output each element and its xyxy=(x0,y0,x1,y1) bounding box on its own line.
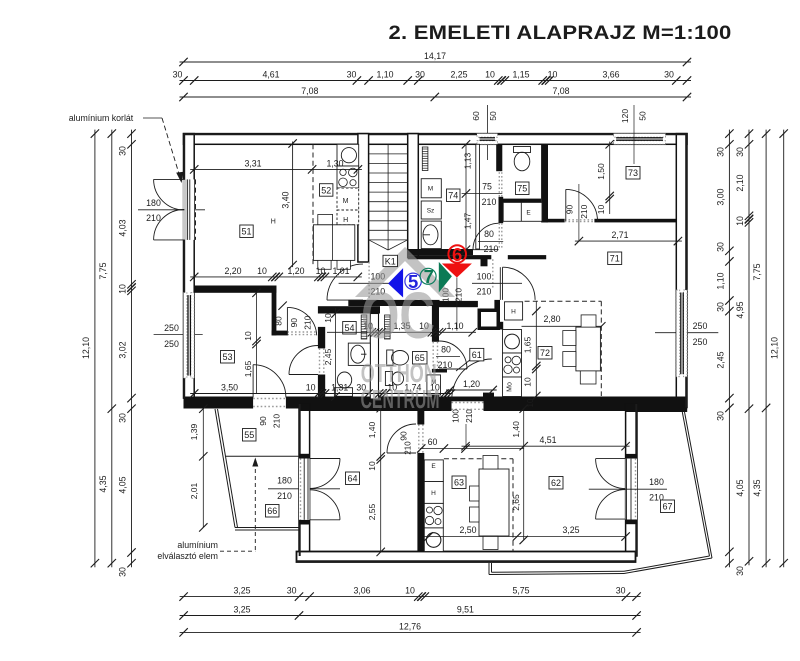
svg-text:30: 30 xyxy=(173,70,183,80)
svg-text:210: 210 xyxy=(464,409,474,423)
svg-text:elválasztó elem: elválasztó elem xyxy=(157,551,218,561)
svg-text:210: 210 xyxy=(482,197,497,207)
svg-text:7,75: 7,75 xyxy=(752,263,762,280)
svg-text:2,01: 2,01 xyxy=(189,482,199,499)
svg-text:250: 250 xyxy=(693,337,708,347)
svg-text:30: 30 xyxy=(715,242,725,252)
svg-text:30: 30 xyxy=(715,411,725,421)
svg-text:12,10: 12,10 xyxy=(770,337,780,359)
svg-text:10: 10 xyxy=(523,377,533,387)
svg-text:30: 30 xyxy=(735,566,745,576)
svg-text:90: 90 xyxy=(258,416,268,426)
svg-text:2,80: 2,80 xyxy=(543,314,560,324)
svg-text:60: 60 xyxy=(428,437,438,447)
svg-text:55: 55 xyxy=(244,430,254,440)
svg-text:5: 5 xyxy=(408,271,418,292)
svg-text:10: 10 xyxy=(548,70,558,80)
svg-text:90: 90 xyxy=(399,431,409,441)
svg-text:3,00: 3,00 xyxy=(715,188,725,205)
svg-text:1,20: 1,20 xyxy=(463,379,480,389)
svg-text:Mo: Mo xyxy=(507,382,514,392)
svg-text:63: 63 xyxy=(454,478,464,488)
svg-text:2,10: 2,10 xyxy=(735,174,745,191)
svg-text:1,50: 1,50 xyxy=(596,163,606,180)
svg-text:30: 30 xyxy=(616,586,626,596)
svg-text:1,10: 1,10 xyxy=(376,70,393,80)
svg-text:3,50: 3,50 xyxy=(221,383,238,393)
svg-text:30: 30 xyxy=(118,413,128,423)
svg-text:7,08: 7,08 xyxy=(552,86,569,96)
svg-text:54: 54 xyxy=(344,323,354,333)
svg-text:100: 100 xyxy=(477,271,492,281)
svg-text:3,25: 3,25 xyxy=(233,586,250,596)
svg-text:1,40: 1,40 xyxy=(367,421,377,438)
svg-text:10: 10 xyxy=(596,205,606,215)
svg-text:10: 10 xyxy=(243,331,253,341)
svg-text:12,10: 12,10 xyxy=(81,337,91,359)
svg-text:10: 10 xyxy=(306,383,316,393)
svg-text:3,66: 3,66 xyxy=(602,70,619,80)
svg-text:90: 90 xyxy=(565,205,575,215)
svg-text:E: E xyxy=(431,463,436,470)
svg-text:30: 30 xyxy=(118,567,128,577)
svg-text:2,71: 2,71 xyxy=(611,230,628,240)
svg-text:3,06: 3,06 xyxy=(353,586,370,596)
svg-text:73: 73 xyxy=(628,168,638,178)
svg-text:1,65: 1,65 xyxy=(243,360,253,377)
svg-text:30: 30 xyxy=(287,586,297,596)
svg-text:4,51: 4,51 xyxy=(539,435,556,445)
svg-text:7,75: 7,75 xyxy=(98,262,108,279)
svg-text:210: 210 xyxy=(454,288,464,302)
svg-text:K1: K1 xyxy=(385,256,396,266)
svg-text:4,61: 4,61 xyxy=(262,70,279,80)
svg-text:250: 250 xyxy=(164,339,179,349)
svg-text:51: 51 xyxy=(241,227,251,237)
svg-text:50: 50 xyxy=(488,111,498,121)
svg-text:210: 210 xyxy=(272,414,282,428)
svg-text:2,50: 2,50 xyxy=(459,525,476,535)
svg-text:2,55: 2,55 xyxy=(367,503,377,520)
svg-text:30: 30 xyxy=(664,70,674,80)
svg-text:12,76: 12,76 xyxy=(399,621,421,631)
svg-text:alumínium korlát: alumínium korlát xyxy=(69,113,134,123)
svg-text:H: H xyxy=(343,217,348,224)
svg-text:80: 80 xyxy=(441,345,451,355)
svg-text:2,45: 2,45 xyxy=(715,351,725,368)
svg-text:H: H xyxy=(511,309,516,316)
svg-text:10: 10 xyxy=(257,266,267,276)
svg-text:64: 64 xyxy=(347,474,357,484)
svg-text:2,25: 2,25 xyxy=(450,70,467,80)
svg-text:H: H xyxy=(431,490,436,497)
svg-text:210: 210 xyxy=(477,287,492,297)
svg-text:4,95: 4,95 xyxy=(735,301,745,318)
svg-text:180: 180 xyxy=(649,477,664,487)
svg-text:10: 10 xyxy=(735,216,745,226)
svg-text:2,65: 2,65 xyxy=(511,494,521,511)
svg-text:E: E xyxy=(526,210,531,217)
svg-text:10: 10 xyxy=(405,586,415,596)
svg-text:2. EMELETI ALAPRAJZ M=1:100: 2. EMELETI ALAPRAJZ M=1:100 xyxy=(389,22,732,44)
svg-text:10: 10 xyxy=(485,70,495,80)
svg-text:80: 80 xyxy=(274,316,284,326)
svg-text:30: 30 xyxy=(347,70,357,80)
svg-text:2,45: 2,45 xyxy=(323,348,333,365)
svg-text:72: 72 xyxy=(540,348,550,358)
svg-text:50: 50 xyxy=(638,111,648,121)
svg-text:6: 6 xyxy=(452,244,462,265)
svg-text:H: H xyxy=(271,218,276,225)
svg-text:10: 10 xyxy=(118,284,128,294)
svg-text:30: 30 xyxy=(118,146,128,156)
svg-text:1,01: 1,01 xyxy=(332,266,349,276)
svg-text:3,02: 3,02 xyxy=(118,341,128,358)
svg-text:62: 62 xyxy=(551,478,561,488)
svg-text:250: 250 xyxy=(164,323,179,333)
svg-text:80: 80 xyxy=(484,229,494,239)
svg-text:30: 30 xyxy=(715,302,725,312)
svg-text:61: 61 xyxy=(472,350,482,360)
svg-text:M: M xyxy=(428,186,433,193)
svg-text:1,10: 1,10 xyxy=(715,272,725,289)
svg-text:210: 210 xyxy=(484,244,499,254)
svg-text:100: 100 xyxy=(451,409,461,423)
svg-text:180: 180 xyxy=(277,476,292,486)
svg-text:3,25: 3,25 xyxy=(233,605,250,615)
svg-text:1,13: 1,13 xyxy=(463,152,473,169)
svg-text:75: 75 xyxy=(482,182,492,192)
svg-text:9,51: 9,51 xyxy=(457,605,474,615)
svg-text:210: 210 xyxy=(579,204,589,218)
svg-text:71: 71 xyxy=(610,254,620,264)
svg-text:180: 180 xyxy=(146,198,161,208)
svg-text:CENTRUM: CENTRUM xyxy=(361,384,440,414)
svg-text:4,03: 4,03 xyxy=(118,219,128,236)
svg-text:1,31: 1,31 xyxy=(331,383,348,393)
svg-text:7: 7 xyxy=(424,266,434,287)
svg-text:30: 30 xyxy=(415,70,425,80)
svg-text:90: 90 xyxy=(289,318,299,328)
svg-text:14,17: 14,17 xyxy=(424,51,446,61)
svg-text:120: 120 xyxy=(620,109,630,123)
svg-text:74: 74 xyxy=(448,191,458,201)
svg-text:4,05: 4,05 xyxy=(735,479,745,496)
svg-text:10: 10 xyxy=(323,313,333,323)
svg-text:4,35: 4,35 xyxy=(752,479,762,496)
svg-text:75: 75 xyxy=(517,184,527,194)
svg-text:210: 210 xyxy=(303,315,313,329)
svg-text:250: 250 xyxy=(693,321,708,331)
svg-text:2,20: 2,20 xyxy=(224,266,241,276)
svg-text:66: 66 xyxy=(267,506,277,516)
svg-text:M: M xyxy=(343,198,349,205)
svg-text:1,30: 1,30 xyxy=(326,158,343,168)
svg-text:7,08: 7,08 xyxy=(301,86,318,96)
svg-text:Sz: Sz xyxy=(427,208,435,215)
svg-text:52: 52 xyxy=(321,185,331,195)
svg-text:1,10: 1,10 xyxy=(446,321,463,331)
svg-text:3,40: 3,40 xyxy=(280,191,290,208)
svg-text:210: 210 xyxy=(404,441,413,455)
svg-text:210: 210 xyxy=(438,360,453,370)
svg-text:1,20: 1,20 xyxy=(287,266,304,276)
svg-text:10: 10 xyxy=(367,461,377,471)
svg-text:1,39: 1,39 xyxy=(189,423,199,440)
svg-text:1,65: 1,65 xyxy=(523,336,533,353)
svg-text:1,40: 1,40 xyxy=(511,421,521,438)
svg-text:10: 10 xyxy=(526,398,535,407)
svg-text:1,47: 1,47 xyxy=(463,212,473,229)
svg-text:53: 53 xyxy=(222,352,232,362)
svg-text:210: 210 xyxy=(146,213,161,223)
svg-text:4,35: 4,35 xyxy=(98,475,108,492)
svg-text:alumínium: alumínium xyxy=(177,540,218,550)
svg-text:3,31: 3,31 xyxy=(244,158,261,168)
svg-text:60: 60 xyxy=(471,111,481,121)
svg-text:4,05: 4,05 xyxy=(118,476,128,493)
svg-text:30: 30 xyxy=(715,147,725,157)
svg-text:210: 210 xyxy=(277,491,292,501)
svg-text:3,25: 3,25 xyxy=(562,525,579,535)
svg-text:1,15: 1,15 xyxy=(512,70,529,80)
svg-text:67: 67 xyxy=(662,502,672,512)
svg-text:30: 30 xyxy=(735,147,745,157)
svg-text:5,75: 5,75 xyxy=(512,586,529,596)
svg-text:10: 10 xyxy=(316,266,326,276)
